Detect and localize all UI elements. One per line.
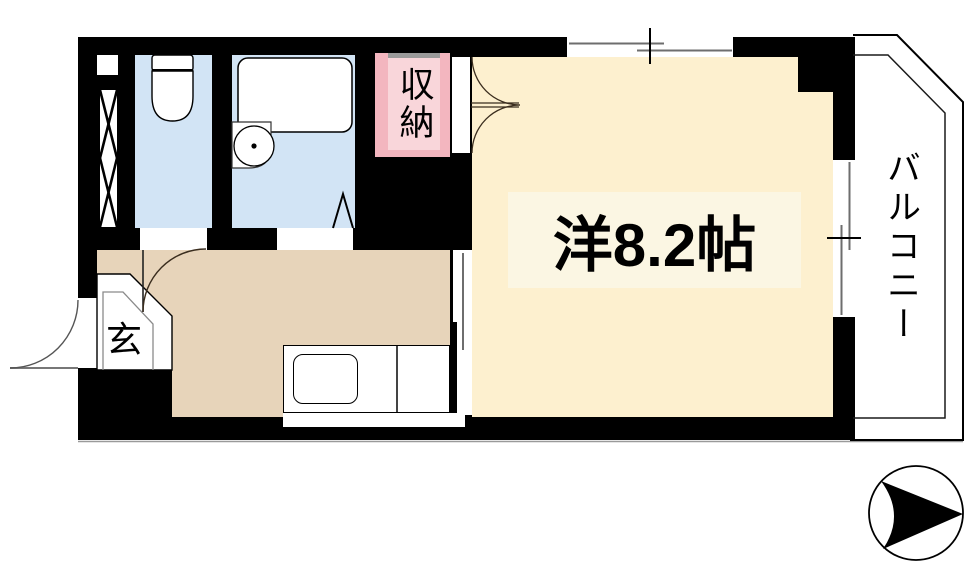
entrance-door-swing-icon bbox=[10, 300, 78, 368]
entrance-label: 玄 bbox=[103, 315, 145, 359]
wall-sliver bbox=[450, 322, 457, 415]
storage-label: 収納 bbox=[388, 58, 440, 150]
floor-plan: 洋8.2帖 収納 玄 バルコニー bbox=[0, 0, 976, 573]
main-room-upper bbox=[472, 57, 798, 93]
main-room-label: 洋8.2帖 bbox=[508, 192, 801, 288]
entrance-door-arc bbox=[10, 300, 78, 368]
balcony-sliding-door-opening bbox=[833, 160, 855, 317]
counter-divider bbox=[396, 346, 398, 412]
wall-below-entrance bbox=[78, 370, 172, 440]
entrance-door-opening bbox=[78, 298, 97, 368]
compass-circle bbox=[869, 466, 963, 560]
pipe-shaft bbox=[100, 90, 117, 227]
toilet-small-window bbox=[97, 55, 118, 75]
top-window bbox=[567, 36, 733, 57]
compass-needle bbox=[881, 481, 963, 549]
toilet-door-opening bbox=[140, 228, 207, 250]
counter-lower-edge bbox=[283, 413, 465, 427]
toilet-room bbox=[135, 55, 212, 228]
bathroom-door-opening bbox=[277, 228, 353, 250]
balcony-label: バルコニー bbox=[877, 122, 925, 372]
closet-door-opening bbox=[452, 57, 470, 153]
bathroom bbox=[232, 55, 355, 228]
kitchen-sink-icon bbox=[293, 354, 358, 404]
compass-arrow-icon bbox=[869, 466, 963, 560]
